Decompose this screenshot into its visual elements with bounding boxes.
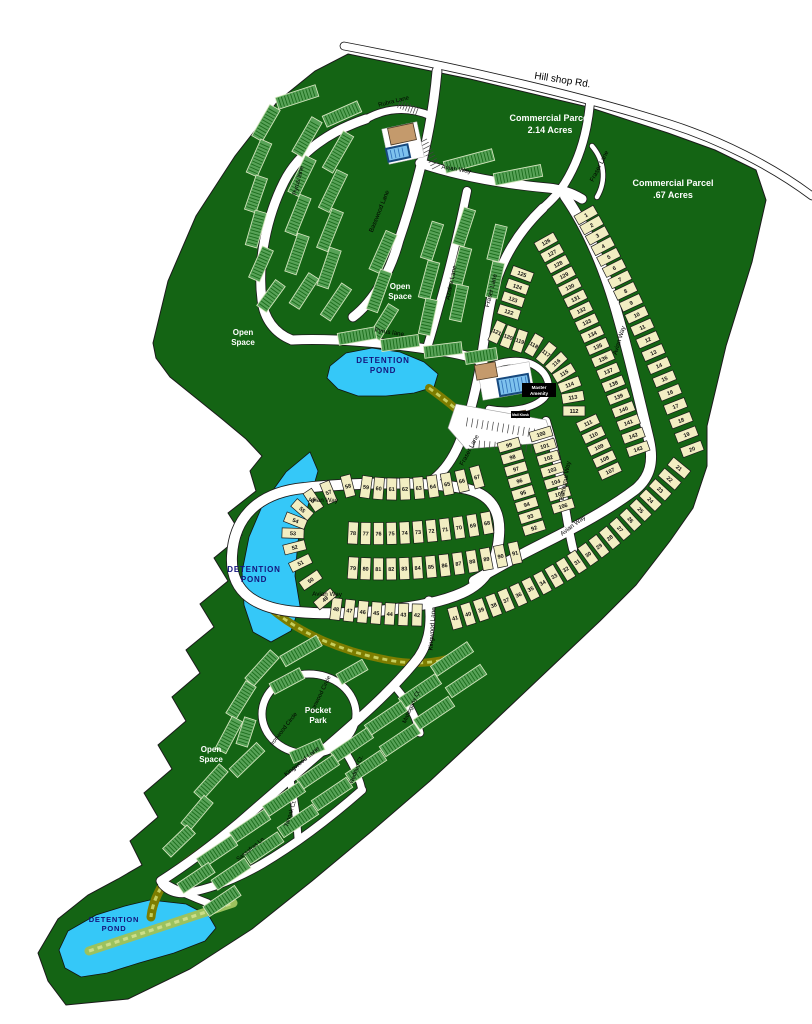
lot-63: 63: [413, 477, 425, 500]
svg-text:Open: Open: [233, 328, 254, 337]
svg-text:POND: POND: [241, 575, 267, 584]
lot-number-80: 80: [362, 567, 368, 573]
svg-text:Pocket: Pocket: [305, 706, 332, 715]
lot-number-86: 86: [441, 563, 448, 570]
site-plan-canvas: 1234567891011121314151617181920212223242…: [0, 0, 812, 1024]
svg-text:.67 Acres: .67 Acres: [653, 190, 693, 200]
lot-86: 86: [438, 554, 450, 577]
lot-75: 75: [386, 522, 397, 544]
lot-number-78: 78: [350, 531, 356, 537]
lot-number-88: 88: [469, 559, 476, 566]
lot-number-76: 76: [375, 532, 381, 538]
lot-number-60: 60: [375, 486, 382, 492]
lot-72: 72: [425, 519, 437, 542]
svg-text:Open: Open: [390, 282, 411, 291]
lot-number-75: 75: [388, 531, 394, 537]
svg-text:Master: Master: [532, 385, 547, 390]
lot-number-46: 46: [359, 610, 366, 617]
lot-74: 74: [399, 522, 410, 544]
lot-number-69: 69: [470, 523, 477, 530]
street-label-avian-way-3: Avian Way: [308, 497, 339, 505]
lot-number-87: 87: [455, 561, 462, 568]
lot-number-79: 79: [350, 566, 357, 572]
lot-number-70: 70: [456, 525, 463, 532]
lot-45: 45: [370, 602, 382, 625]
lot-80: 80: [360, 557, 371, 579]
svg-text:Space: Space: [231, 338, 255, 347]
svg-text:DETENTION: DETENTION: [356, 356, 409, 365]
svg-text:Amenity: Amenity: [530, 391, 549, 396]
amenity-badge-1: Mail Kiosk: [511, 411, 530, 418]
svg-text:Space: Space: [199, 755, 223, 764]
lot-77: 77: [360, 522, 370, 544]
svg-text:2.14 Acres: 2.14 Acres: [528, 125, 573, 135]
svg-text:Open: Open: [201, 745, 222, 754]
lot-number-71: 71: [442, 527, 449, 534]
svg-text:Space: Space: [388, 292, 412, 301]
lot-number-53: 53: [290, 531, 296, 537]
lot-42: 42: [412, 604, 423, 626]
lot-79: 79: [347, 557, 358, 580]
lot-83: 83: [399, 557, 410, 579]
lot-43: 43: [398, 603, 409, 625]
lot-82: 82: [386, 558, 396, 580]
lot-number-72: 72: [428, 529, 435, 536]
lot-number-85: 85: [428, 564, 435, 571]
lot-number-90: 90: [497, 554, 504, 561]
svg-text:POND: POND: [370, 366, 396, 375]
lot-61: 61: [386, 478, 396, 500]
svg-text:DETENTION: DETENTION: [227, 565, 280, 574]
area-label-open-space-west: OpenSpace: [231, 328, 255, 347]
lot-62: 62: [400, 478, 411, 500]
lot-number-83: 83: [401, 566, 407, 572]
lot-number-82: 82: [388, 567, 394, 573]
lot-number-77: 77: [363, 531, 369, 537]
lot-number-81: 81: [375, 567, 381, 573]
lot-number-43: 43: [400, 612, 406, 618]
lot-number-59: 59: [362, 485, 369, 492]
lot-47: 47: [343, 599, 355, 622]
site-plan-map: 1234567891011121314151617181920212223242…: [0, 0, 812, 1024]
lot-number-61: 61: [389, 487, 395, 493]
lot-53: 53: [282, 528, 304, 539]
lot-number-73: 73: [415, 530, 422, 536]
street-label-avian-way-4: Avian Way: [312, 591, 343, 599]
area-label-open-space-north: OpenSpace: [388, 282, 412, 301]
lot-84: 84: [412, 557, 423, 580]
lot-78: 78: [347, 522, 358, 544]
lot-number-48: 48: [332, 607, 339, 614]
lot-81: 81: [373, 558, 383, 580]
lot-number-112: 112: [570, 409, 579, 415]
lot-number-45: 45: [373, 611, 380, 617]
lot-44: 44: [384, 603, 395, 626]
lot-number-63: 63: [416, 486, 423, 493]
lot-number-65: 65: [444, 481, 451, 488]
amenity-badge-0: MasterAmenity: [522, 383, 556, 397]
svg-text:Commercial Parcel: Commercial Parcel: [632, 178, 713, 188]
lot-112: 112: [563, 406, 585, 416]
lot-71: 71: [439, 518, 452, 541]
svg-text:Mail Kiosk: Mail Kiosk: [512, 413, 529, 417]
svg-text:POND: POND: [102, 924, 127, 933]
svg-text:Park: Park: [309, 716, 327, 725]
lot-46: 46: [357, 600, 369, 623]
lot-85: 85: [425, 555, 437, 578]
lot-73: 73: [412, 521, 424, 544]
lot-number-47: 47: [346, 608, 353, 615]
svg-text:Commercial Parcel: Commercial Parcel: [509, 113, 590, 123]
lot-number-89: 89: [483, 556, 490, 563]
amenity-building-1: [474, 362, 497, 380]
lot-number-68: 68: [484, 520, 491, 527]
area-label-open-space-southwest: OpenSpace: [199, 745, 223, 764]
svg-text:DETENTION: DETENTION: [89, 915, 140, 924]
lot-76: 76: [373, 523, 383, 545]
lot-60: 60: [373, 477, 385, 500]
lot-number-62: 62: [402, 487, 408, 493]
lot-number-42: 42: [414, 613, 420, 619]
